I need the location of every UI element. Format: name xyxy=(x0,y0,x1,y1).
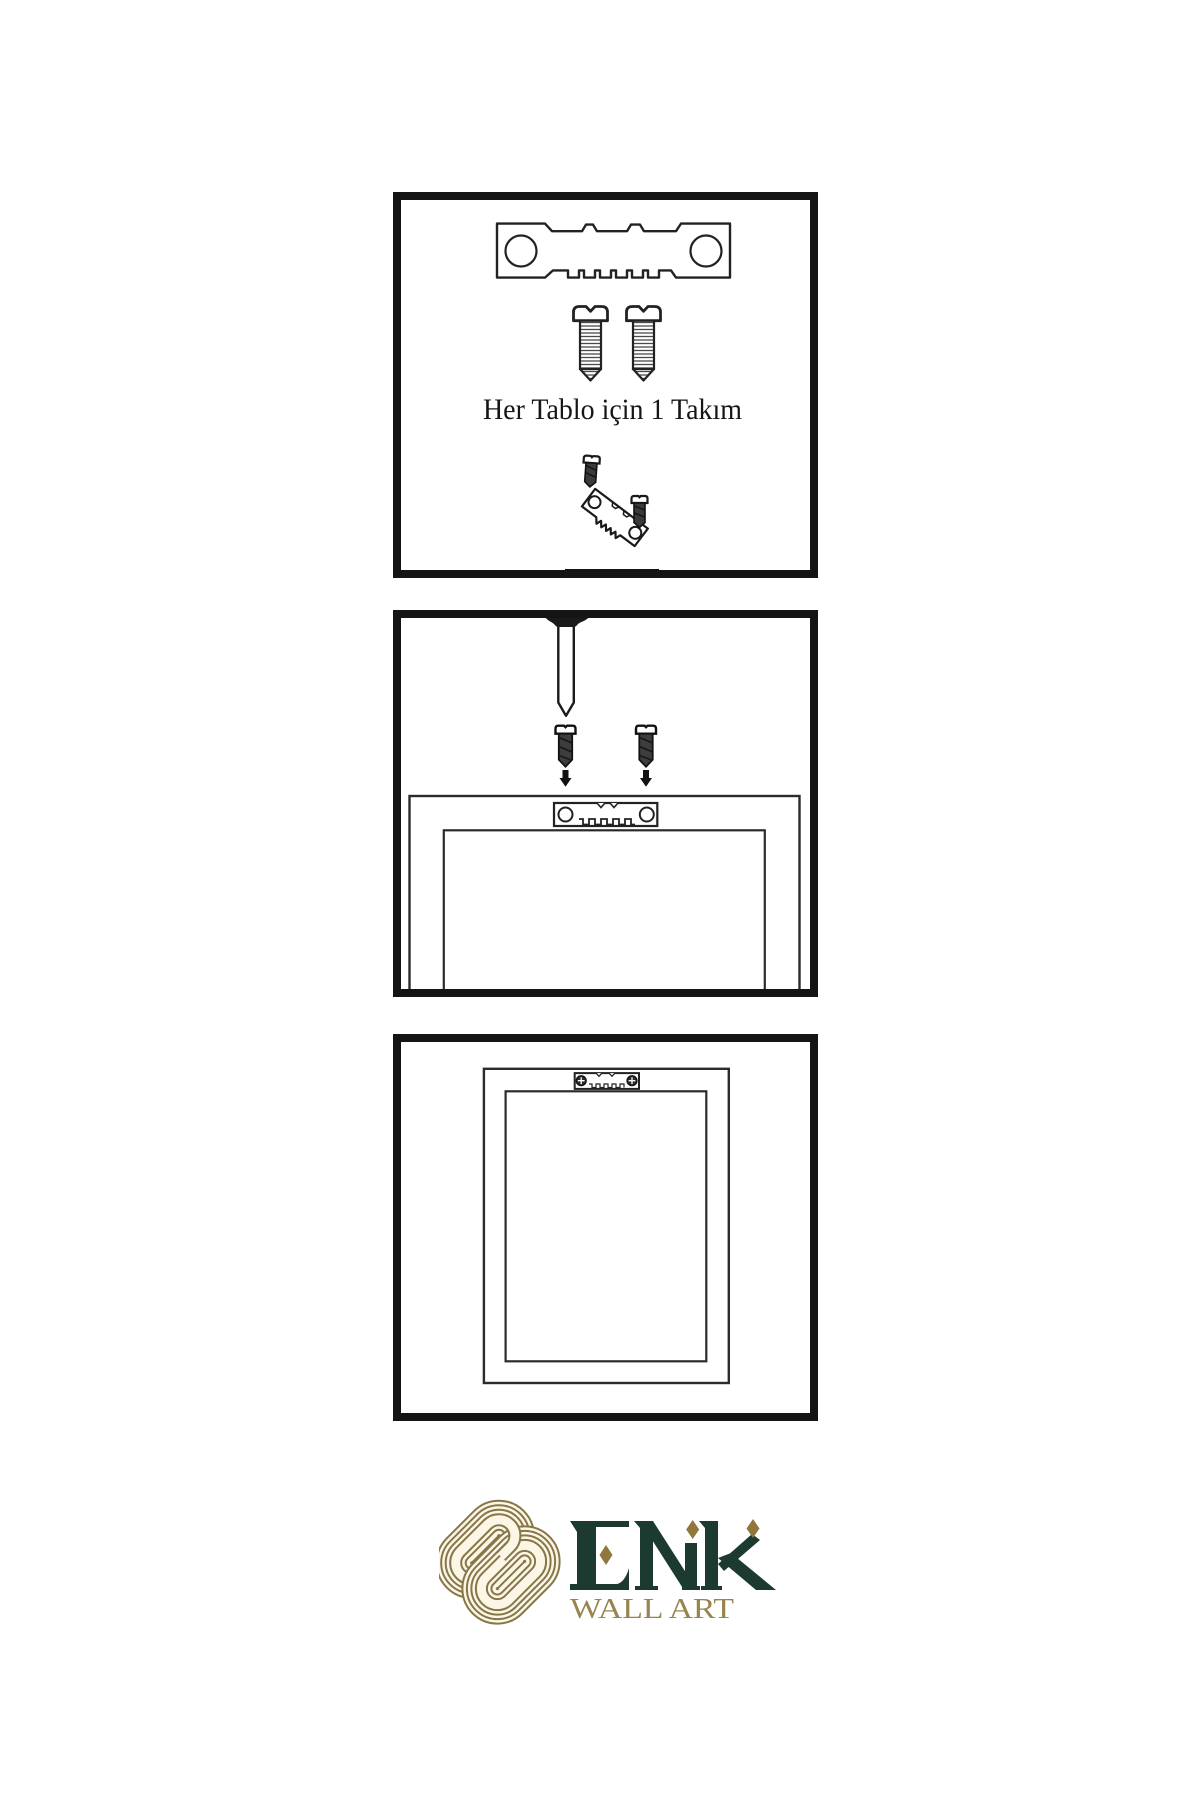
svg-text:Her Tablo için 1 Takım: Her Tablo için 1 Takım xyxy=(483,393,742,426)
svg-text:WALL ART: WALL ART xyxy=(570,1594,734,1625)
